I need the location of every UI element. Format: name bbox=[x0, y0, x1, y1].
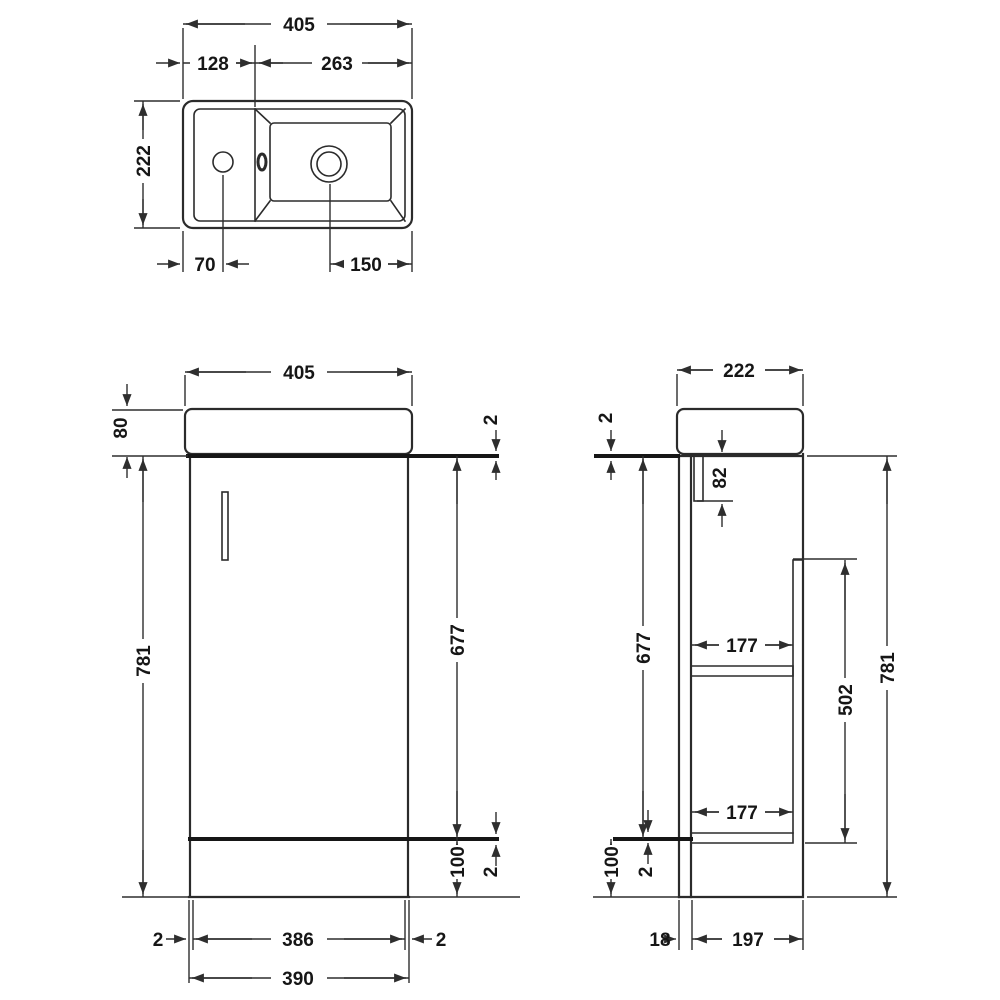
plan-tap-hole bbox=[213, 152, 233, 172]
plan-waste-inner bbox=[317, 152, 341, 176]
dim-plan-tap-hole-offset: 70 bbox=[194, 255, 215, 276]
dim-front-bottom-gap: 2 bbox=[481, 867, 502, 878]
plan-extension-lines bbox=[134, 28, 412, 272]
dim-side-door-thickness: 18 bbox=[649, 930, 670, 951]
dim-front-overall-width: 405 bbox=[283, 363, 315, 384]
dim-side-back-panel-height: 502 bbox=[836, 684, 857, 716]
plan-sink-outline bbox=[183, 101, 412, 228]
dim-side-carcass-depth: 197 bbox=[732, 930, 764, 951]
dim-front-left-gap: 2 bbox=[153, 930, 164, 951]
side-shelf-upper bbox=[692, 666, 793, 676]
dim-side-bottom-gap: 2 bbox=[636, 867, 657, 878]
front-view: 405 80 781 2 677 100 2 2 386 2 bbox=[111, 361, 520, 990]
front-door-handle bbox=[222, 492, 228, 560]
dim-side-upper-shelf-depth: 177 bbox=[726, 636, 758, 657]
dim-front-overall-height: 781 bbox=[134, 645, 155, 677]
front-basin bbox=[185, 409, 412, 454]
side-hanging-rail bbox=[694, 456, 703, 501]
dim-side-door-height: 677 bbox=[634, 632, 655, 664]
dim-side-overall-height: 781 bbox=[878, 652, 899, 684]
dim-plan-basin-width: 263 bbox=[321, 54, 353, 75]
side-back-panel bbox=[793, 560, 803, 833]
dim-side-top-gap: 2 bbox=[596, 413, 617, 424]
dim-front-worktop-height: 80 bbox=[111, 417, 132, 438]
dim-front-door-height: 677 bbox=[448, 624, 469, 656]
dim-front-carcass-width: 390 bbox=[282, 969, 314, 990]
dim-front-top-gap: 2 bbox=[481, 415, 502, 426]
side-basin bbox=[677, 409, 803, 454]
technical-drawing: 405 128 263 222 70 150 bbox=[0, 0, 1000, 1000]
side-shelf-lower bbox=[692, 833, 793, 843]
plan-view: 405 128 263 222 70 150 bbox=[132, 13, 412, 276]
dim-front-right-gap: 2 bbox=[436, 930, 447, 951]
dim-plan-depth: 222 bbox=[134, 145, 155, 177]
dim-front-door-width: 386 bbox=[282, 930, 314, 951]
dim-front-plinth-height: 100 bbox=[448, 846, 469, 878]
dim-side-rail-height: 82 bbox=[710, 467, 731, 488]
plan-overflow-slot bbox=[258, 154, 266, 170]
dim-side-depth: 222 bbox=[723, 361, 755, 382]
front-extension-lines bbox=[112, 375, 520, 983]
side-door bbox=[679, 456, 691, 897]
side-view: 222 2 82 677 177 177 502 781 bbox=[593, 359, 899, 951]
dim-side-plinth-height: 100 bbox=[602, 846, 623, 878]
plan-sink-inner-edge bbox=[194, 109, 405, 221]
dim-plan-overall-width: 405 bbox=[283, 15, 315, 36]
dim-plan-left-section-width: 128 bbox=[197, 54, 229, 75]
dim-side-lower-shelf-depth: 177 bbox=[726, 803, 758, 824]
dim-plan-waste-offset: 150 bbox=[350, 255, 382, 276]
